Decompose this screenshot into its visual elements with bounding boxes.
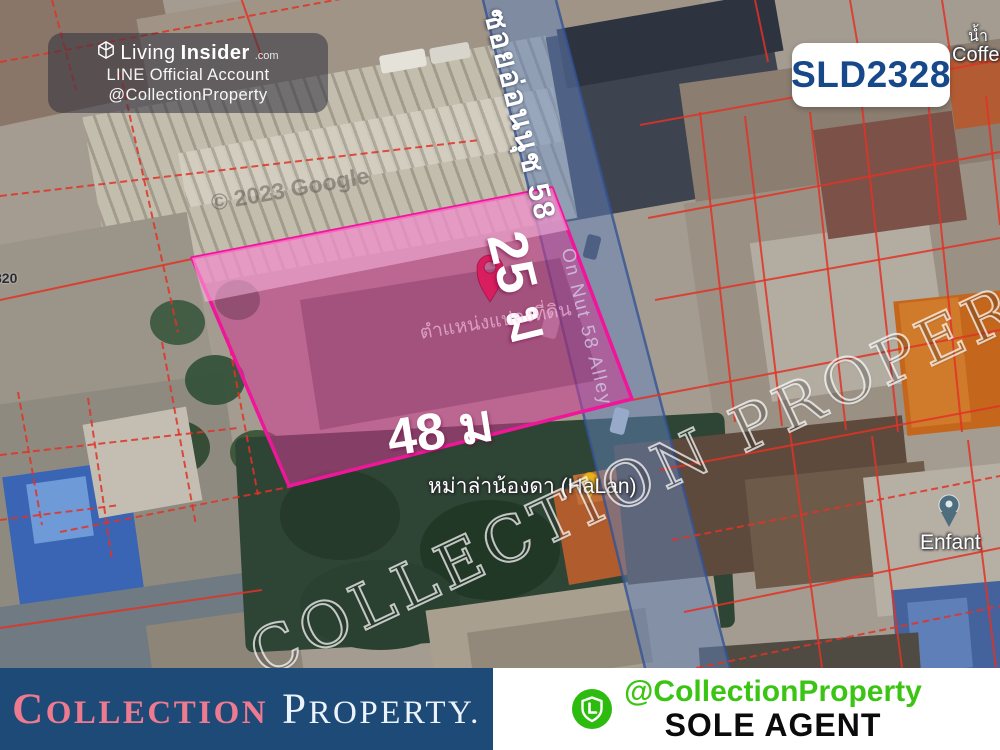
sole-agent-label: SOLE AGENT: [665, 708, 882, 743]
brand-tld: .com: [255, 50, 279, 62]
brand-collection: Collection: [12, 685, 268, 734]
listing-code: SLD2328: [791, 54, 951, 96]
line-account-badge: LivingInsider.com LINE Official Account …: [48, 33, 328, 113]
footer-bar: Collection Property. @CollectionProperty…: [0, 668, 1000, 750]
badge-line-official: LINE Official Account: [106, 66, 269, 85]
line-app-icon: [571, 688, 613, 730]
brand-insider: Insider: [181, 42, 250, 65]
listing-graphic: ซอยอ่อนนุช 58 On Nut 58 Alley 25 ม 48 ม …: [0, 0, 1000, 750]
living-insider-logo: LivingInsider.com: [97, 41, 278, 65]
cube-logo-icon: [97, 41, 115, 59]
brand-living: Living: [120, 42, 175, 65]
footer-line-handle: @CollectionProperty: [624, 675, 922, 708]
footer-brand: Collection Property.: [0, 668, 493, 750]
map-label-fragment: 820: [0, 270, 17, 286]
footer-contact: @CollectionProperty SOLE AGENT: [493, 668, 1000, 750]
brand-property: Property.: [282, 685, 481, 734]
enfant-poi-icon: [939, 495, 959, 527]
listing-code-badge: SLD2328: [792, 43, 950, 107]
badge-line-handle: @CollectionProperty: [108, 86, 267, 105]
poi-label-enfant: Enfant: [920, 531, 981, 555]
poi-label-coffee-thai: น้ำ: [968, 24, 988, 49]
